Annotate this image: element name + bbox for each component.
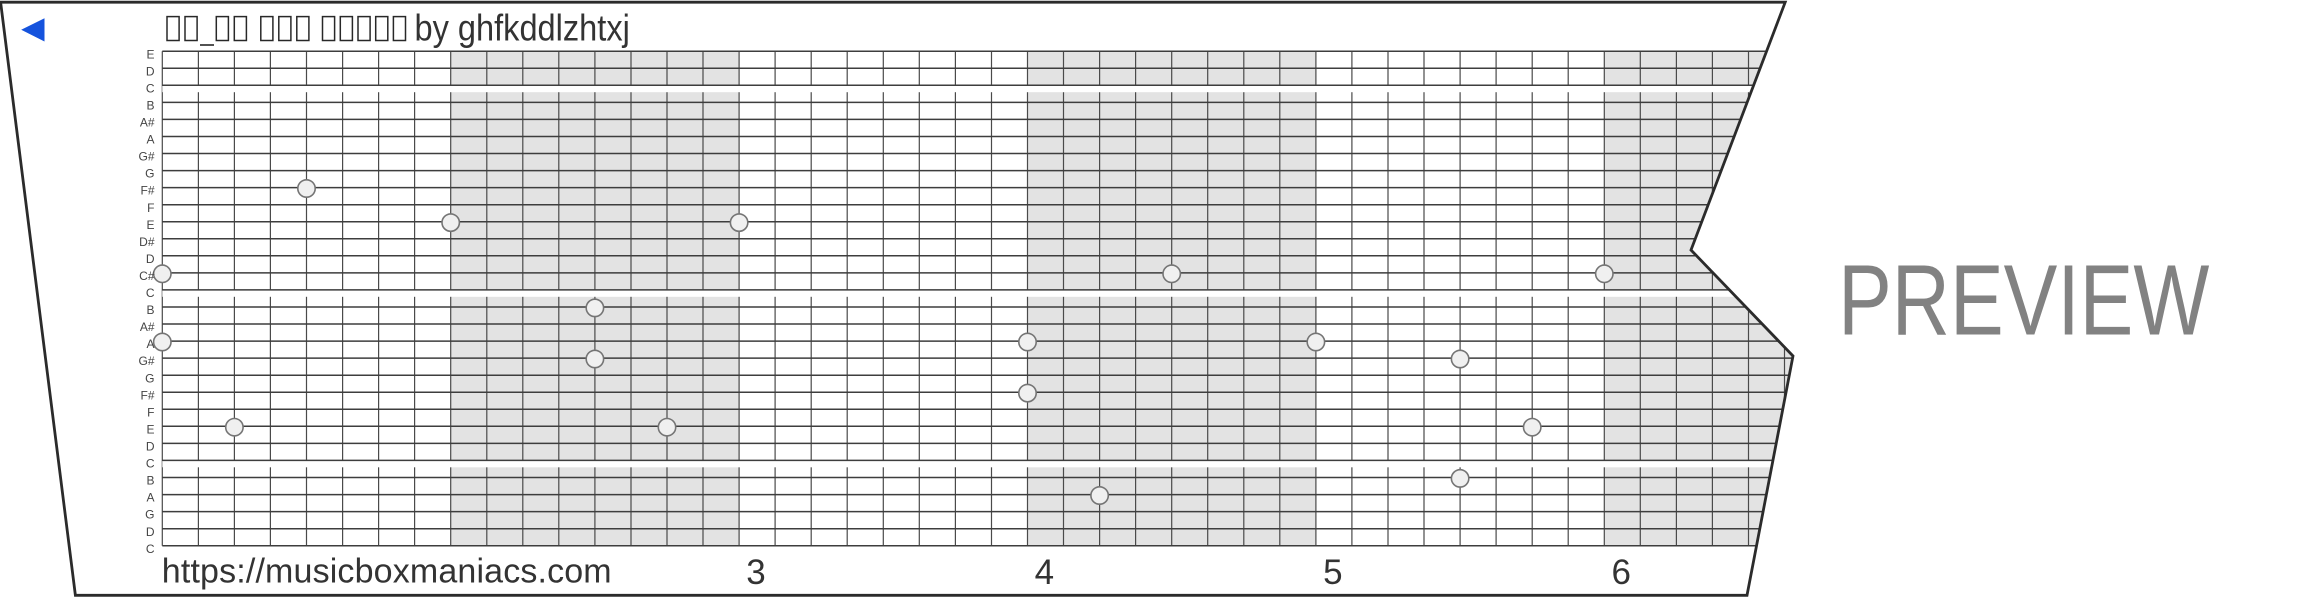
svg-text:A#: A# [140,116,155,130]
svg-text:F#: F# [140,184,154,198]
svg-text:PREVIEW: PREVIEW [1838,245,2210,356]
svg-text:G#: G# [138,150,154,164]
svg-text:F: F [147,405,154,419]
svg-text:G: G [145,371,154,385]
svg-text:3: 3 [746,553,765,592]
svg-text:B: B [146,99,154,113]
svg-text:C: C [146,286,155,300]
svg-text:C: C [146,542,155,556]
svg-text:D: D [146,525,155,539]
svg-text:A: A [146,133,154,147]
svg-text:E: E [146,47,154,61]
svg-text:D#: D# [139,235,155,249]
svg-text:D: D [146,64,155,78]
svg-text:C: C [146,457,155,471]
svg-text:F#: F# [140,388,154,402]
svg-text:G#: G# [138,354,154,368]
svg-text:D: D [146,252,155,266]
svg-text:4: 4 [1035,553,1054,592]
svg-text:G: G [145,167,154,181]
svg-text:B: B [146,303,154,317]
svg-text:F: F [147,201,154,215]
svg-text:E: E [146,218,154,232]
svg-text:6: 6 [1611,553,1630,592]
svg-text:A#: A# [140,320,155,334]
svg-text:C#: C# [139,269,155,283]
svg-text:G: G [145,508,154,522]
svg-text:A: A [146,491,154,505]
svg-text:A: A [146,337,154,351]
svg-text:C: C [146,81,155,95]
svg-text:E: E [146,422,154,436]
svg-text:D: D [146,440,155,454]
svg-text:by ghfkddlzhtxj: by ghfkddlzhtxj [415,8,630,49]
svg-text:5: 5 [1323,553,1342,592]
svg-text:https://musicboxmaniacs.com: https://musicboxmaniacs.com [162,553,612,591]
svg-text:B: B [146,474,154,488]
